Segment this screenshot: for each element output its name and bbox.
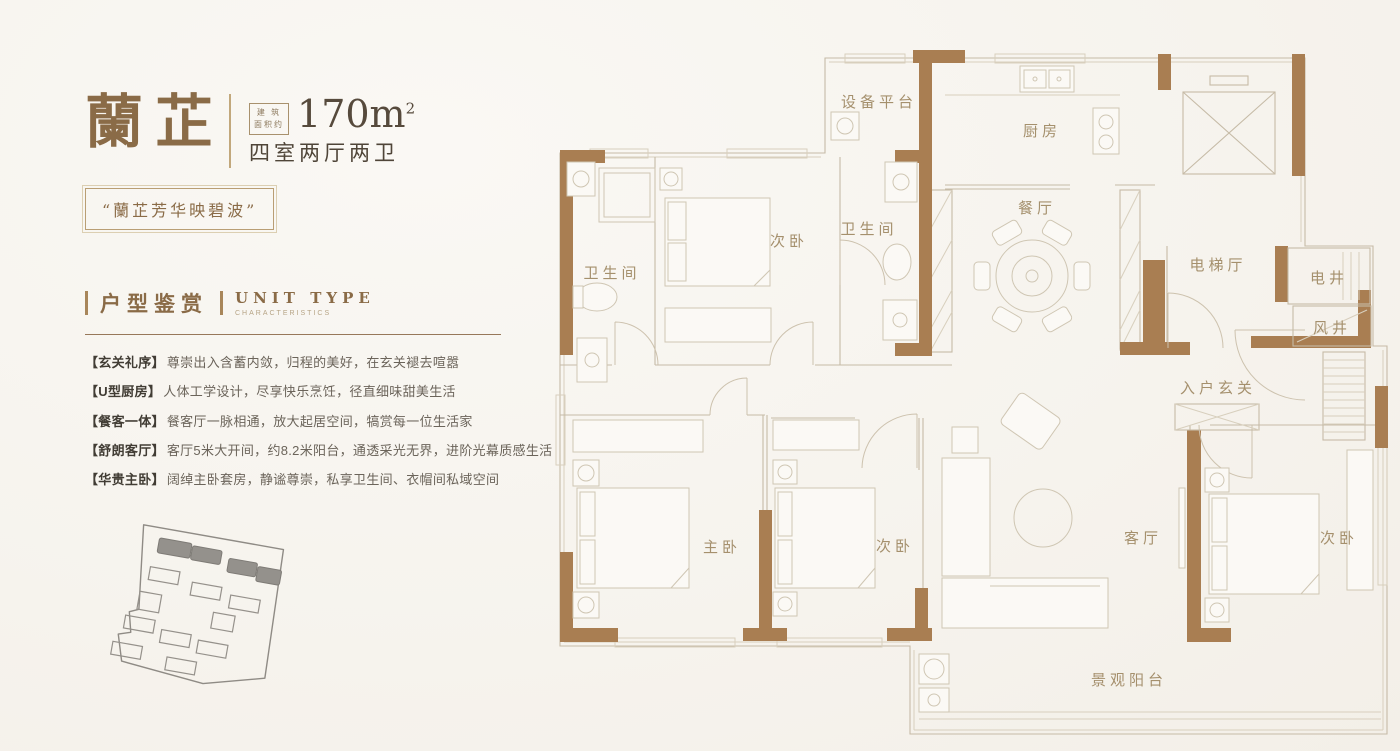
section-subtitle-en: CHARACTERISTICS [235,310,375,317]
room-label-wind-shaft: 风井 [1313,319,1351,337]
feature-tag: 【U型厨房】 [85,384,161,399]
master-bedroom-furniture [573,420,703,618]
feature-item: 【U型厨房】人体工学设计，尽享快乐烹饪，径直细味甜美生活 [85,384,515,400]
room-label-elevator-hall: 电梯厅 [1189,256,1246,274]
title-block: 蘭芷 建 筑 面积约 170m2 四室两厅两卫 [85,92,515,168]
feature-tag: 【餐客一体】 [85,414,165,429]
room-label-master-bedroom: 主卧 [703,538,741,556]
room-label-electric-shaft: 电井 [1310,269,1348,287]
living-room-furniture [942,391,1185,628]
feature-desc: 阔绰主卧套房，静谧尊崇，私享卫生间、衣帽间私域空间 [167,472,500,487]
room-label-bedroom-top: 次卧 [770,232,808,250]
feature-desc: 餐客厅一脉相通，放大起居空间，犒赏每一位生活家 [167,414,473,429]
entry-cabinet [1175,404,1259,430]
feature-item: 【餐客一体】餐客厅一脉相通，放大起居空间，犒赏每一位生活家 [85,414,515,430]
area-badge-line2: 面积约 [254,119,284,131]
info-panel: 蘭芷 建 筑 面积约 170m2 四室两厅两卫 “蘭芷芳华映碧波” 户型鉴赏 U… [85,92,515,717]
feature-item: 【华贵主卧】阔绰主卧套房，静谧尊崇，私享卫生间、衣帽间私域空间 [85,472,515,488]
bedroom-mid-furniture [773,420,875,616]
project-name: 蘭芷 [85,92,225,153]
tagline-box: “蘭芷芳华映碧波” [85,188,274,230]
area-value: 170m2 [297,94,415,136]
plan-outline [560,58,1387,734]
feature-list: 【玄关礼序】尊崇出入含蓄内敛，归程的美好，在玄关褪去喧嚣 【U型厨房】人体工学设… [85,355,515,488]
room-label-entry: 入户玄关 [1180,379,1256,397]
feature-item: 【玄关礼序】尊崇出入含蓄内敛，归程的美好，在玄关褪去喧嚣 [85,355,515,371]
section-header: 户型鉴赏 UNIT TYPE CHARACTERISTICS [85,288,515,318]
dining-table [974,219,1090,333]
site-plan-map [95,514,515,717]
room-label-bathroom-2: 卫生间 [840,220,897,238]
room-label-equipment-platform: 设备平台 [841,93,917,111]
feature-desc: 人体工学设计，尽享快乐烹饪，径直细味甜美生活 [163,384,456,399]
area-badge-line1: 建 筑 [254,107,284,119]
area-block: 建 筑 面积约 170m2 四室两厅两卫 [249,92,415,167]
stairs [1323,352,1365,440]
area-badge: 建 筑 面积约 [249,103,289,135]
room-label-kitchen: 厨房 [1023,122,1061,140]
room-label-living: 客厅 [1124,529,1162,547]
feature-tag: 【玄关礼序】 [85,355,165,370]
room-label-bedroom-mid: 次卧 [876,537,914,555]
balcony-fixtures [919,654,949,712]
section-bar-left [85,291,88,315]
layout-type: 四室两厅两卫 [249,137,415,167]
feature-item: 【舒朗客厅】客厅5米大开间，约8.2米阳台，通透采光无界，进阶光幕质感生活 [85,443,515,459]
floor-plan: 设备平台 厨房 餐厅 电梯厅 电井 风井 卫生间 次卧 卫生间 入户玄关 主卧 … [515,50,1395,750]
feature-tag: 【舒朗客厅】 [85,443,165,458]
feature-tag: 【华贵主卧】 [85,472,165,487]
room-label-bathroom-1: 卫生间 [583,264,640,282]
bedroom-top-furniture [660,168,771,342]
bathroom-2-fixtures [883,162,917,340]
section-title-en: UNIT TYPE [235,289,375,307]
section-title-cn: 户型鉴赏 [100,288,208,318]
title-divider [229,94,231,168]
feature-desc: 尊崇出入含蓄内敛，归程的美好，在玄关褪去喧嚣 [167,355,460,370]
feature-desc: 客厅5米大开间，约8.2米阳台，通透采光无界，进阶光幕质感生活 [167,443,553,458]
elevator-shaft [1183,76,1275,174]
area-number: 170m [297,92,406,136]
section-rule [85,334,501,335]
room-label-dining: 餐厅 [1018,199,1056,217]
room-label-balcony: 景观阳台 [1091,671,1167,689]
area-sup: 2 [406,99,416,117]
kitchen-fixtures [945,66,1120,154]
equipment-platform-fixture [831,112,859,140]
site-buildings-highlighted [155,538,284,585]
room-label-bedroom-right: 次卧 [1320,529,1358,547]
site-buildings [110,563,263,684]
dining-chairs [974,219,1090,333]
section-bar-mid [220,291,223,315]
